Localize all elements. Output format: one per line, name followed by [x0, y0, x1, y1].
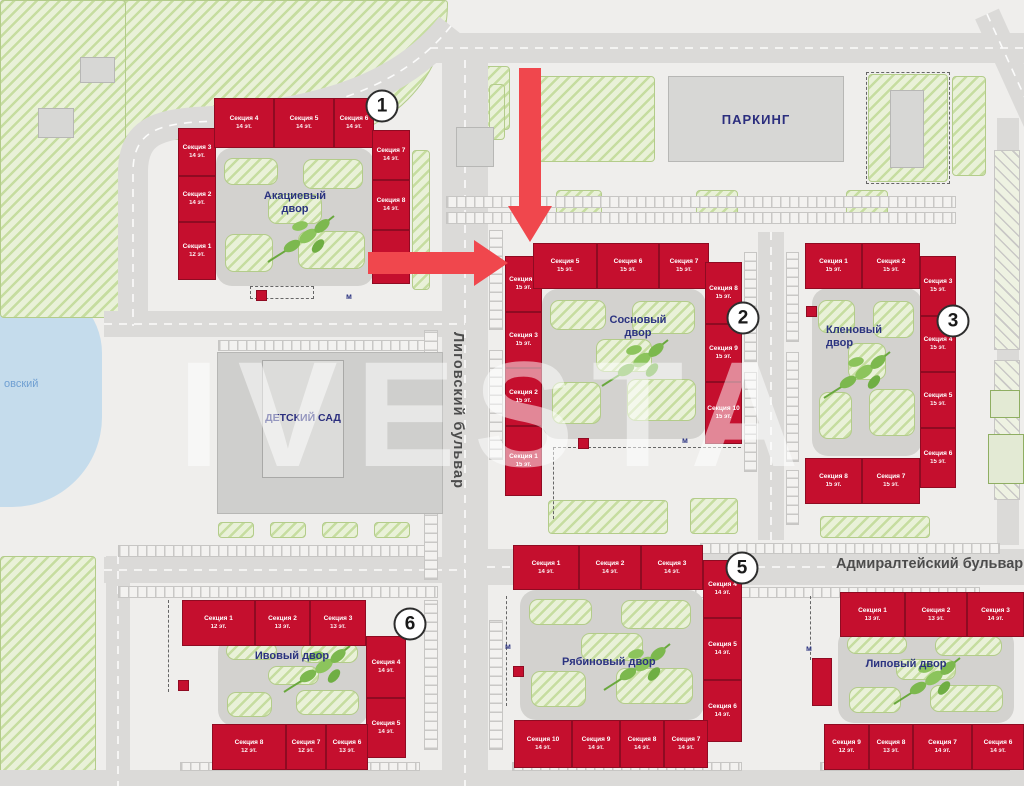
building-section[interactable]: Секция 614 эт.	[972, 724, 1024, 770]
section-name: Секция 8	[709, 284, 738, 293]
dashed-boundary	[168, 600, 170, 692]
utility-marker: м	[682, 436, 688, 445]
section-floors: 14 эт.	[664, 568, 680, 576]
section-floors: 12 эт.	[839, 747, 855, 755]
gray-building	[456, 127, 494, 167]
section-name: Секция 8	[628, 735, 657, 744]
section-name: Секция 10	[707, 404, 739, 413]
building-section[interactable]: Секция 414 эт.	[366, 636, 406, 698]
section-name: Секция 6	[340, 114, 369, 123]
section-name: Секция 1	[204, 614, 233, 623]
section-floors: 14 эт.	[935, 747, 951, 755]
building-section[interactable]: Секция 912 эт.	[824, 724, 869, 770]
section-floors: 15 эт.	[716, 353, 732, 361]
section-name: Секция 1	[183, 242, 212, 251]
entrance-marker	[256, 290, 267, 301]
section-floors: 14 эт.	[535, 744, 551, 752]
courtyard-label: Сосновый двор	[598, 314, 678, 339]
section-floors: 15 эт.	[620, 266, 636, 274]
parking-stalls	[118, 586, 438, 598]
section-name: Секция 3	[509, 331, 538, 340]
green-area	[531, 671, 586, 707]
building-section[interactable]: Секция 714 эт.	[372, 130, 410, 180]
section-floors: 13 эт.	[883, 747, 899, 755]
section-floors: 14 эт.	[715, 649, 731, 657]
section-name: Секция 9	[582, 735, 611, 744]
section-name: Секция 8	[377, 196, 406, 205]
entrance-marker	[178, 680, 189, 691]
building-section[interactable]: Секция 615 эт.	[920, 428, 956, 488]
section-floors: 14 эт.	[383, 155, 399, 163]
building-section[interactable]: Секция 714 эт.	[664, 720, 708, 768]
parking-stalls	[446, 196, 956, 208]
section-floors: 14 эт.	[988, 615, 1004, 623]
section-name: Секция 8	[235, 738, 264, 747]
courtyard-label: Кленовый двор	[826, 324, 908, 349]
section-floors: 14 эт.	[189, 152, 205, 160]
entrance-marker	[513, 666, 524, 677]
utility-marker: м	[806, 644, 812, 653]
section-floors: 15 эт.	[516, 340, 532, 348]
building-section[interactable]: Секция 314 эт.	[967, 592, 1024, 637]
building-section[interactable]: Секция 315 эт.	[505, 312, 542, 368]
parking-label: ПАРКИНГ	[722, 112, 790, 127]
green-area	[303, 159, 363, 189]
dashed-boundary	[506, 596, 508, 706]
section-floors: 15 эт.	[826, 481, 842, 489]
courtyard-label: Ивовый двор	[232, 650, 352, 663]
entrance-marker	[806, 306, 817, 317]
section-floors: 12 эт.	[189, 251, 205, 259]
parking-stalls	[786, 470, 799, 525]
section-floors: 14 эт.	[383, 205, 399, 213]
building-section[interactable]: Секция 514 эт.	[274, 98, 334, 148]
section-name: Секция 7	[377, 146, 406, 155]
section-floors: 14 эт.	[678, 744, 694, 752]
section-floors: 12 эт.	[298, 747, 314, 755]
map-canvas: овский ПАРКИНГ ДЕТСКИЙ САД Лиговский бул…	[0, 0, 1024, 786]
building-section[interactable]: Секция 214 эт.	[579, 545, 641, 590]
parking-stalls	[786, 352, 799, 462]
section-name: Секция 3	[981, 606, 1010, 615]
entrance-marker	[812, 658, 832, 706]
kindergarten-label: ДЕТСКИЙ САД	[265, 412, 341, 426]
section-floors: 14 эт.	[990, 747, 1006, 755]
parking-stalls	[446, 212, 956, 224]
section-name: Секция 3	[324, 614, 353, 623]
section-name: Секция 6	[924, 449, 953, 458]
street-label-admiralteysky: Адмиралтейский бульвар	[836, 556, 1023, 572]
section-floors: 14 эт.	[378, 728, 394, 736]
section-floors: 15 эт.	[826, 266, 842, 274]
parking-stalls	[118, 545, 438, 557]
green-area	[621, 600, 691, 629]
building-section[interactable]: Секция 215 эт.	[505, 368, 542, 426]
section-floors: 15 эт.	[676, 266, 692, 274]
section-name: Секция 5	[372, 719, 401, 728]
building-section[interactable]: Секция 515 эт.	[920, 372, 956, 428]
gray-building	[80, 57, 115, 83]
section-floors: 15 эт.	[557, 266, 573, 274]
section-name: Секция 8	[877, 738, 906, 747]
section-name: Секция 7	[292, 738, 321, 747]
building-section[interactable]: Секция 613 эт.	[326, 724, 368, 770]
courtyard-label: Рябиновый двор	[562, 656, 656, 669]
section-name: Секция 5	[290, 114, 319, 123]
section-name: Секция 3	[183, 143, 212, 152]
tree-icon	[262, 206, 346, 270]
section-name: Секция 4	[372, 658, 401, 667]
utility-marker: м	[505, 642, 511, 651]
courtyard-label: Липовый двор	[864, 658, 948, 671]
building-badge-6[interactable]: 6	[394, 608, 427, 641]
building-section[interactable]: Секция 314 эт.	[641, 545, 703, 590]
building-section[interactable]: Секция 112 эт.	[178, 222, 216, 280]
section-name: Секция 1	[858, 606, 887, 615]
sport-court	[990, 390, 1020, 418]
building-section[interactable]: Секция 1014 эт.	[514, 720, 572, 768]
building-section[interactable]: Секция 814 эт.	[372, 180, 410, 230]
section-floors: 13 эт.	[275, 623, 291, 631]
building-section[interactable]: Секция 313 эт.	[310, 600, 366, 646]
building-section[interactable]: Секция 115 эт.	[505, 426, 542, 496]
parking-stalls	[489, 620, 503, 750]
building-section[interactable]: Секция 215 эт.	[862, 243, 920, 289]
section-name: Секция 5	[708, 640, 737, 649]
building-badge-1[interactable]: 1	[366, 90, 399, 123]
section-floors: 14 эт.	[189, 199, 205, 207]
section-floors: 14 эт.	[538, 568, 554, 576]
gray-building	[38, 108, 74, 138]
section-name: Секция 3	[658, 559, 687, 568]
building-section[interactable]: Секция 614 эт.	[703, 680, 742, 742]
section-name: Секция 1	[532, 559, 561, 568]
building-section[interactable]: Секция 514 эт.	[703, 618, 742, 680]
building-section[interactable]: Секция 115 эт.	[805, 243, 862, 289]
section-name: Секция 2	[268, 614, 297, 623]
section-floors: 15 эт.	[930, 458, 946, 466]
green-area	[552, 382, 601, 424]
building-section[interactable]: Секция 113 эт.	[840, 592, 905, 637]
section-name: Секция 2	[596, 559, 625, 568]
parking-stalls	[744, 372, 757, 472]
dashed-boundary	[553, 447, 741, 519]
building-section[interactable]: Секция 812 эт.	[212, 724, 286, 770]
building-section[interactable]: Секция 514 эт.	[366, 698, 406, 758]
section-name: Секция 2	[877, 257, 906, 266]
building-badge-2[interactable]: 2	[727, 302, 760, 335]
section-floors: 15 эт.	[930, 286, 946, 294]
section-floors: 12 эт.	[241, 747, 257, 755]
section-floors: 14 эт.	[588, 744, 604, 752]
section-name: Секция 1	[509, 452, 538, 461]
section-name: Секция 2	[922, 606, 951, 615]
section-floors: 13 эт.	[865, 615, 881, 623]
dashed-boundary	[866, 72, 950, 184]
section-floors: 14 эт.	[602, 568, 618, 576]
section-floors: 15 эт.	[883, 266, 899, 274]
section-floors: 15 эт.	[516, 284, 532, 292]
kindergarten-building: ДЕТСКИЙ САД	[262, 360, 344, 478]
building-section[interactable]: Секция 414 эт.	[214, 98, 274, 148]
section-floors: 14 эт.	[346, 123, 362, 131]
section-name: Секция 7	[928, 738, 957, 747]
section-floors: 13 эт.	[330, 623, 346, 631]
section-floors: 14 эт.	[236, 123, 252, 131]
utility-marker: м	[346, 292, 352, 301]
parking-stalls	[994, 150, 1020, 350]
section-name: Секция 6	[614, 257, 643, 266]
section-name: Секция 6	[984, 738, 1013, 747]
section-name: Секция 3	[924, 277, 953, 286]
parking-stalls	[489, 350, 503, 460]
tree-icon	[596, 330, 680, 394]
street-label-ligovsky: Лиговский бульвар	[450, 332, 466, 572]
section-name: Секция 8	[819, 472, 848, 481]
building-section[interactable]: Секция 815 эт.	[805, 458, 862, 504]
section-name: Секция 7	[877, 472, 906, 481]
section-name: Секция 10	[527, 735, 559, 744]
building-section[interactable]: Секция 814 эт.	[620, 720, 664, 768]
green-area	[227, 692, 272, 717]
building-badge-5[interactable]: 5	[726, 552, 759, 585]
parking-building: ПАРКИНГ	[668, 76, 844, 162]
tree-icon	[818, 342, 902, 406]
section-name: Секция 9	[709, 344, 738, 353]
building-section[interactable]: Секция 112 эт.	[182, 600, 255, 646]
section-name: Секция 6	[708, 702, 737, 711]
green-area	[529, 599, 592, 625]
section-floors: 14 эт.	[634, 744, 650, 752]
section-floors: 15 эт.	[516, 397, 532, 405]
building-section[interactable]: Секция 714 эт.	[913, 724, 972, 770]
section-floors: 13 эт.	[928, 615, 944, 623]
section-name: Секция 6	[333, 738, 362, 747]
green-area	[224, 158, 278, 186]
parking-stalls	[218, 340, 436, 351]
section-floors: 15 эт.	[930, 344, 946, 352]
building-section[interactable]: Секция 1015 эт.	[705, 382, 742, 444]
section-name: Секция 7	[672, 735, 701, 744]
building-section[interactable]: Секция 213 эт.	[255, 600, 310, 646]
section-name: Секция 9	[377, 252, 406, 261]
section-name: Секция 2	[509, 388, 538, 397]
entrance-marker	[578, 438, 589, 449]
section-floors: 12 эт.	[211, 623, 227, 631]
building-section[interactable]: Секция 712 эт.	[286, 724, 326, 770]
building-section[interactable]: Секция 914 эт.	[572, 720, 620, 768]
section-floors: 15 эт.	[883, 481, 899, 489]
section-name: Секция 2	[183, 190, 212, 199]
section-floors: 13 эт.	[339, 747, 355, 755]
building-badge-3[interactable]: 3	[937, 305, 970, 338]
building-section[interactable]: Секция 813 эт.	[869, 724, 913, 770]
parking-stalls	[786, 252, 799, 342]
building-section[interactable]: Секция 615 эт.	[597, 243, 659, 289]
courtyard-label: Акациевый двор	[258, 190, 332, 215]
section-name: Секция 5	[551, 257, 580, 266]
section-name: Секция 4	[230, 114, 259, 123]
section-floors: 14 эт.	[715, 711, 731, 719]
section-floors: 15 эт.	[930, 400, 946, 408]
parking-stalls	[489, 230, 503, 330]
building-section[interactable]: Секция 515 эт.	[533, 243, 597, 289]
section-floors: 14 эт.	[378, 667, 394, 675]
section-floors: 14 эт.	[715, 589, 731, 597]
section-name: Секция 1	[819, 257, 848, 266]
building-section[interactable]: Секция 715 эт.	[862, 458, 920, 504]
building-section[interactable]: Секция 114 эт.	[513, 545, 579, 590]
building-section[interactable]: Секция 214 эт.	[178, 176, 216, 222]
building-section[interactable]: Секция 314 эт.	[178, 128, 216, 176]
section-floors: 15 эт.	[716, 293, 732, 301]
building-section[interactable]: Секция 9	[372, 230, 410, 284]
section-name: Секция 7	[670, 257, 699, 266]
section-floors: 15 эт.	[716, 413, 732, 421]
building-section[interactable]: Секция 715 эт.	[659, 243, 709, 289]
section-floors: 15 эт.	[516, 461, 532, 469]
section-floors: 14 эт.	[296, 123, 312, 131]
section-name: Секция 5	[924, 391, 953, 400]
sport-court	[988, 434, 1024, 484]
section-name: Секция 9	[832, 738, 861, 747]
building-section[interactable]: Секция 213 эт.	[905, 592, 967, 637]
